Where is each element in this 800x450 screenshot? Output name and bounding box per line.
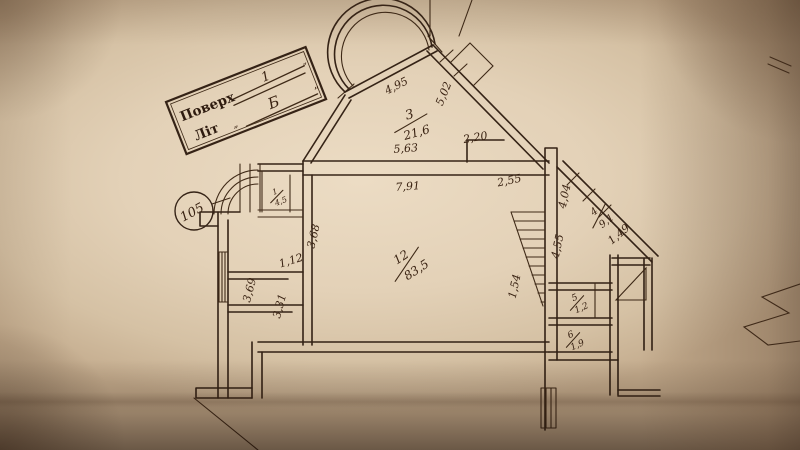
- entry-door-arc-outer: [214, 170, 258, 214]
- floor-value: 1: [259, 69, 272, 86]
- bay-arc-inner: [341, 12, 429, 86]
- room12-bottom-wall: [258, 342, 549, 352]
- top-continuation-lines: [430, 0, 472, 36]
- bottom-left-diagonal-line: [194, 398, 258, 450]
- lit-value-rule-bottom: [245, 94, 319, 126]
- left-wing-walls: [194, 212, 549, 450]
- adjacent-sheet-marks: [768, 57, 791, 73]
- lit-open-quote-mark: „: [231, 119, 240, 131]
- floor-quote-mark: ”: [302, 62, 310, 73]
- left-partition-upper: [228, 272, 303, 279]
- room-area: 4,5: [272, 195, 288, 208]
- dimension-room12-top: 7,91: [395, 179, 420, 194]
- east-diagonal-wall: [557, 161, 658, 262]
- diagonal-wall-bump: [451, 43, 493, 85]
- dimension-closet-width: 1,12: [277, 251, 304, 271]
- adjacent-sheet-zigzag: [744, 284, 800, 345]
- room-number: 5: [570, 293, 580, 305]
- dimension-entry-depth: 3,68: [305, 223, 323, 250]
- left-bottom-wall: [252, 342, 262, 398]
- dimension-landing-upper: 4,04: [555, 183, 573, 211]
- dimension-left-lower: 3,69: [240, 277, 259, 304]
- room-area: 21,6: [401, 122, 432, 143]
- left-partition-lower: [228, 305, 303, 312]
- room-5-label: 5 1,2: [565, 290, 591, 318]
- bottom-window-section: [541, 388, 556, 428]
- dimension-upper-diagonal: 5,02: [433, 80, 454, 108]
- bay-arc-outer: [328, 0, 435, 92]
- floor-plan-drawing: 4,95 5,02 5,63 2,20 7,91 2,55 3,68 1,12 …: [0, 0, 800, 450]
- dimension-room3-left: 5,63: [393, 141, 418, 156]
- reference-leader-line: [212, 198, 230, 204]
- door-swing-triangle: [616, 268, 646, 300]
- entry-top-wall: [258, 164, 303, 171]
- title-block: Поверх Літ 1 ” „ Б ”: [166, 47, 326, 154]
- room-number: 12: [391, 247, 411, 267]
- room12-left-wall: [303, 161, 312, 345]
- reference-circle: 105: [175, 192, 213, 230]
- room-4-label: 4 9,1: [582, 200, 617, 235]
- left-window: [218, 252, 228, 302]
- room-1-label: 1 4,5: [266, 185, 289, 210]
- reference-circle-label: 105: [178, 200, 207, 225]
- outer-left-wall: [218, 212, 228, 398]
- entry-door-arc-inner: [228, 184, 258, 214]
- bay-arc-mid: [335, 5, 432, 89]
- dimension-left-mid: 3,31: [270, 293, 289, 320]
- room-number: 6: [566, 330, 576, 342]
- floor-plan-photo: 4,95 5,02 5,63 2,20 7,91 2,55 3,68 1,12 …: [0, 0, 800, 450]
- lit-label: Літ: [192, 120, 222, 144]
- offsheet-lines: [430, 0, 800, 345]
- bottom-left-stub: [196, 388, 252, 398]
- dimension-stair-width: 1,54: [506, 273, 524, 300]
- closet-walls: [258, 171, 303, 217]
- lit-value: Б: [264, 92, 282, 113]
- room3-walls: [303, 43, 549, 175]
- bottom-right-stub: [618, 390, 660, 396]
- room-12-label: 12 83,5: [382, 240, 432, 288]
- dimension-landing-lower: 4,55: [548, 233, 566, 261]
- room-3-label: 3 21,6: [389, 103, 433, 145]
- room-6-label: 6 1,9: [561, 327, 587, 355]
- wall-hatch-ticks: [440, 50, 467, 76]
- dimension-room3-right: 2,20: [461, 129, 488, 146]
